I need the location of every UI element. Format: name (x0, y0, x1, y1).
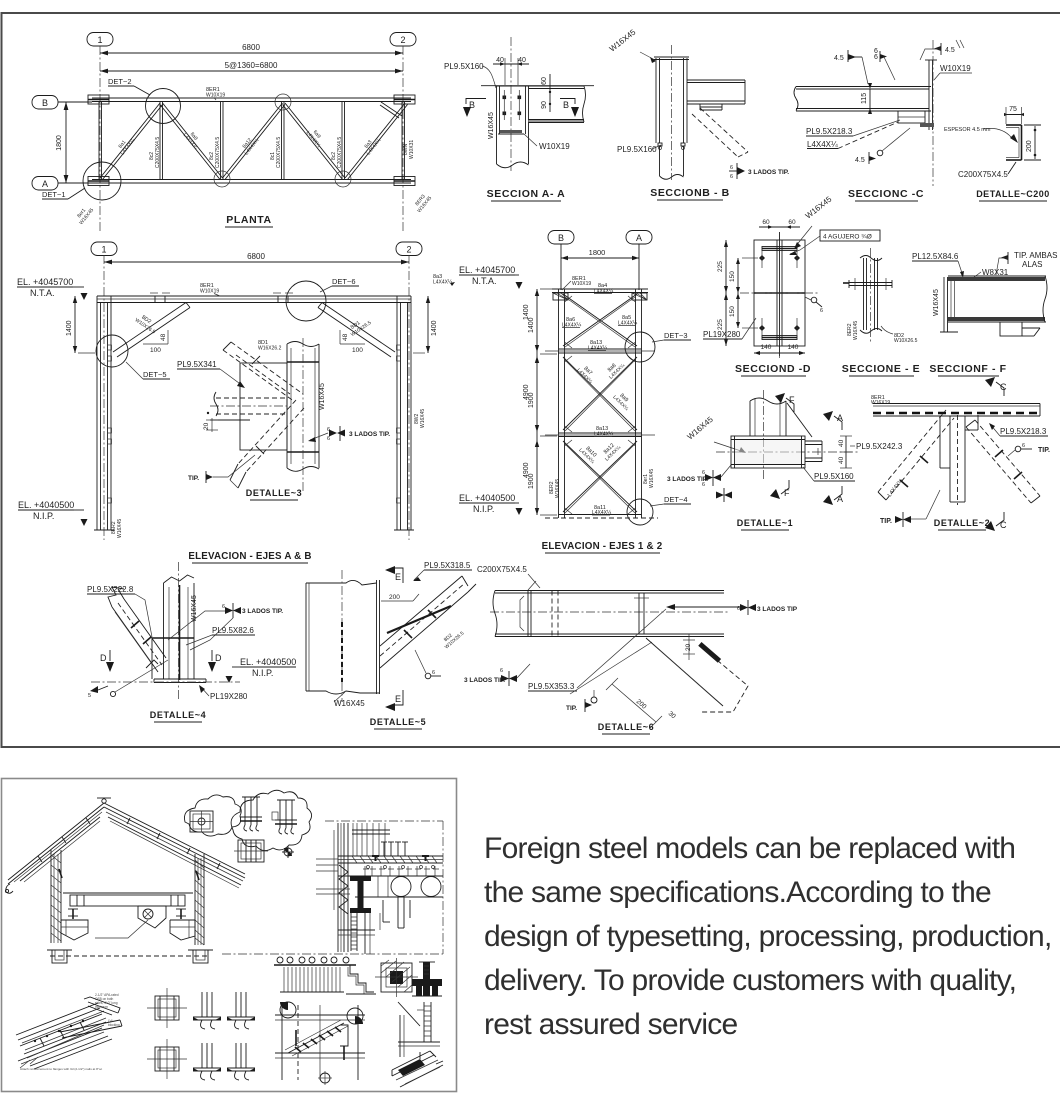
svg-text:N.I.P.: N.I.P. (252, 668, 273, 678)
svg-text:6: 6 (327, 427, 330, 433)
svg-text:DETALLE~2: DETALLE~2 (934, 518, 991, 528)
svg-text:4.5: 4.5 (834, 55, 844, 62)
svg-text:150: 150 (729, 271, 736, 282)
svg-text:PL9.5X341: PL9.5X341 (177, 360, 217, 369)
svg-text:W16X26.2: W16X26.2 (258, 346, 282, 352)
svg-text:48: 48 (160, 333, 167, 341)
svg-text:B: B (558, 233, 564, 243)
svg-text:PL12.5X84.6: PL12.5X84.6 (912, 252, 959, 261)
svg-text:1400: 1400 (66, 320, 73, 336)
svg-text:E: E (395, 694, 401, 704)
svg-text:40: 40 (838, 456, 845, 464)
svg-text:W10X19: W10X19 (940, 64, 971, 73)
svg-text:1800: 1800 (56, 135, 63, 151)
svg-text:W10X19: W10X19 (539, 142, 570, 151)
svg-text:SECCIONC -C: SECCIONC -C (848, 188, 924, 200)
svg-text:SECCIONE - E: SECCIONE - E (842, 363, 920, 375)
svg-text:3 LADOS TIP.: 3 LADOS TIP. (242, 608, 283, 615)
svg-text:20: 20 (203, 422, 210, 430)
svg-text:E: E (395, 572, 401, 582)
svg-text:PL9.5X82.6: PL9.5X82.6 (212, 626, 254, 635)
svg-text:W16X45: W16X45 (420, 409, 426, 428)
svg-text:EL. +4040500: EL. +4040500 (459, 493, 515, 503)
svg-text:L4X4X¼: L4X4X¼ (807, 140, 838, 149)
svg-text:PL9.5X218.3: PL9.5X218.3 (1000, 427, 1047, 436)
svg-text:48: 48 (342, 333, 349, 341)
svg-text:L4X4X¼: L4X4X¼ (433, 280, 453, 286)
svg-text:PL9.5X160: PL9.5X160 (617, 145, 657, 154)
svg-text:6800: 6800 (247, 252, 265, 261)
svg-text:PL9.5X353.3: PL9.5X353.3 (528, 682, 575, 691)
svg-text:ESPESOR 4.5 mm: ESPESOR 4.5 mm (944, 127, 991, 133)
svg-text:40: 40 (838, 439, 845, 447)
svg-text:30: 30 (667, 710, 677, 720)
svg-text:DET~1: DET~1 (42, 190, 66, 199)
svg-text:2: 2 (400, 35, 405, 45)
svg-text:W16X45: W16X45 (488, 112, 495, 139)
svg-text:150: 150 (729, 306, 736, 317)
svg-text:2: 2 (406, 245, 411, 255)
svg-text:6: 6 (874, 54, 878, 61)
svg-text:1: 1 (101, 245, 106, 255)
svg-text:C200X75X4.5: C200X75X4.5 (477, 565, 527, 574)
svg-text:N.T.A.: N.T.A. (30, 288, 55, 298)
svg-text:SECCIOND -D: SECCIOND -D (735, 363, 811, 375)
svg-text:4 AGUJERO ¾Ø: 4 AGUJERO ¾Ø (823, 234, 872, 241)
svg-text:3 LADOS TIP: 3 LADOS TIP (757, 606, 798, 613)
svg-text:D: D (100, 653, 107, 663)
svg-text:C200X75X4.5: C200X75X4.5 (215, 137, 221, 168)
svg-text:225: 225 (717, 261, 724, 272)
svg-text:200: 200 (1026, 140, 1033, 152)
svg-text:4.5: 4.5 (945, 47, 955, 54)
svg-text:DETALLE~1: DETALLE~1 (737, 518, 794, 528)
svg-text:6800: 6800 (242, 43, 260, 52)
svg-text:ELEVACION - EJES A & B: ELEVACION - EJES A & B (188, 551, 311, 562)
svg-text:DETALLE~3: DETALLE~3 (246, 488, 303, 498)
svg-text:PL9.5X318.5: PL9.5X318.5 (424, 561, 471, 570)
svg-text:SECCIONF - F: SECCIONF - F (929, 363, 1006, 375)
svg-text:EL. +4040500: EL. +4040500 (240, 657, 296, 667)
svg-text:6: 6 (820, 308, 823, 314)
svg-text:PL19X280: PL19X280 (703, 330, 741, 339)
svg-text:6: 6 (1022, 443, 1025, 449)
svg-text:5@1360=6800: 5@1360=6800 (225, 61, 278, 70)
svg-text:DETALLE~4: DETALLE~4 (150, 710, 207, 720)
svg-text:90: 90 (541, 101, 548, 109)
svg-text:TIP.: TIP. (566, 705, 577, 712)
svg-text:W16X45: W16X45 (686, 415, 716, 442)
svg-text:PL9.5X160: PL9.5X160 (444, 62, 484, 71)
svg-text:DETALLE~5: DETALLE~5 (370, 717, 427, 727)
svg-text:60: 60 (541, 77, 548, 85)
svg-text:SECCION A- A: SECCION A- A (487, 188, 566, 200)
svg-text:3 LADOS TIP.: 3 LADOS TIP. (464, 677, 505, 684)
svg-text:D: D (215, 653, 222, 663)
svg-text:DET~5: DET~5 (143, 370, 167, 379)
svg-text:PLANTA: PLANTA (226, 214, 271, 226)
svg-text:C: C (1000, 520, 1007, 530)
svg-text:W16X45: W16X45 (649, 469, 655, 488)
svg-text:ALAS: ALAS (1022, 260, 1042, 269)
svg-text:3 LADOS TIP.: 3 LADOS TIP. (349, 431, 390, 438)
svg-text:W16X45: W16X45 (608, 27, 638, 53)
svg-text:W16X45: W16X45 (853, 321, 859, 340)
svg-text:W16X45: W16X45 (334, 699, 365, 708)
svg-text:6: 6 (730, 165, 733, 171)
svg-text:W10X26.5: W10X26.5 (894, 338, 918, 344)
svg-text:200: 200 (635, 698, 648, 711)
svg-text:W10X19: W10X19 (572, 281, 591, 287)
svg-text:6: 6 (500, 668, 503, 674)
svg-text:PL9.5X242.3: PL9.5X242.3 (856, 442, 903, 451)
svg-text:C200X75X4.5: C200X75X4.5 (337, 137, 343, 168)
svg-text:W10X19: W10X19 (200, 289, 219, 295)
svg-text:C200X75X4.5: C200X75X4.5 (155, 137, 161, 168)
svg-text:W10X31: W10X31 (409, 140, 415, 159)
svg-text:6: 6 (874, 48, 878, 55)
svg-text:40: 40 (518, 57, 526, 64)
svg-text:115: 115 (861, 93, 868, 104)
svg-text:L4X4X¼: L4X4X¼ (887, 478, 905, 499)
svg-text:A: A (636, 233, 642, 243)
svg-text:DETALLE~6: DETALLE~6 (598, 722, 655, 732)
svg-text:C200X75X4.5: C200X75X4.5 (276, 137, 282, 168)
svg-text:1800: 1800 (589, 248, 606, 257)
svg-text:DET~6: DET~6 (332, 277, 356, 286)
svg-text:DETALLE~C200: DETALLE~C200 (976, 189, 1050, 199)
svg-text:W16X45: W16X45 (933, 289, 940, 316)
svg-text:W16X19: W16X19 (871, 400, 890, 406)
svg-text:N.I.P.: N.I.P. (33, 511, 54, 521)
svg-text:blocking: blocking (108, 1023, 120, 1027)
svg-text:100: 100 (150, 347, 161, 354)
svg-text:1: 1 (97, 35, 102, 45)
svg-text:TIP.: TIP. (880, 518, 892, 525)
svg-text:minimum: minimum (95, 1005, 108, 1009)
svg-text:140: 140 (788, 344, 799, 351)
svg-text:6: 6 (730, 174, 733, 180)
svg-text:PL9.5X160: PL9.5X160 (814, 472, 854, 481)
svg-text:W16X45: W16X45 (555, 479, 561, 498)
svg-text:PL19X280: PL19X280 (210, 692, 248, 701)
svg-text:3 LADOS TIP.: 3 LADOS TIP. (748, 169, 789, 176)
svg-text:EL. +4045700: EL. +4045700 (459, 265, 515, 275)
svg-text:W16X45: W16X45 (319, 383, 326, 410)
svg-text:W16X45: W16X45 (191, 595, 198, 622)
svg-text:1400: 1400 (528, 317, 535, 333)
svg-text:6: 6 (222, 604, 225, 610)
svg-text:PL9.5X222.8: PL9.5X222.8 (87, 585, 134, 594)
svg-text:W16X45: W16X45 (804, 194, 834, 220)
svg-text:W10X19: W10X19 (206, 93, 225, 99)
svg-text:TIP. AMBAS: TIP. AMBAS (1014, 251, 1057, 260)
svg-text:N.T.A.: N.T.A. (472, 276, 497, 286)
svg-text:1400: 1400 (431, 320, 438, 336)
svg-text:C200X75X4.5: C200X75X4.5 (958, 170, 1008, 179)
svg-text:DET~4: DET~4 (664, 495, 688, 504)
svg-text:1900: 1900 (528, 392, 535, 408)
svg-text:100: 100 (352, 347, 363, 354)
svg-text:C: C (1000, 382, 1007, 392)
svg-text:SECCIONB - B: SECCIONB - B (650, 187, 730, 199)
svg-text:225: 225 (717, 319, 724, 330)
svg-text:A: A (837, 494, 843, 504)
svg-text:B: B (42, 98, 48, 108)
svg-text:EL. +4040500: EL. +4040500 (18, 500, 74, 510)
svg-text:6: 6 (432, 670, 435, 676)
svg-text:6: 6 (327, 436, 330, 442)
svg-text:N.I.P.: N.I.P. (473, 504, 494, 514)
svg-text:EL. +4045700: EL. +4045700 (17, 277, 73, 287)
svg-text:3 LADOS TIP.: 3 LADOS TIP. (667, 476, 708, 483)
svg-text:DET~3: DET~3 (664, 331, 688, 340)
svg-text:F: F (789, 395, 795, 405)
svg-text:W16X45: W16X45 (117, 519, 123, 538)
svg-text:TIP.: TIP. (1038, 447, 1050, 454)
svg-text:5: 5 (88, 693, 91, 699)
svg-text:4.5: 4.5 (855, 157, 865, 164)
svg-text:TIP.: TIP. (188, 475, 199, 482)
svg-text:DET~2: DET~2 (108, 77, 132, 86)
svg-text:140: 140 (761, 344, 772, 351)
svg-text:PL9.5X218.3: PL9.5X218.3 (806, 127, 853, 136)
svg-text:F: F (784, 488, 790, 498)
svg-text:1900: 1900 (528, 473, 535, 489)
svg-text:B: B (563, 100, 569, 110)
svg-text:ELEVACION - EJES 1 & 2: ELEVACION - EJES 1 & 2 (542, 541, 663, 552)
svg-text:75: 75 (1009, 106, 1017, 113)
svg-text:A: A (837, 413, 843, 423)
svg-text:Attach reinforcement to flange: Attach reinforcement to flanges with 3d … (20, 1067, 103, 1071)
svg-text:200: 200 (389, 594, 400, 601)
svg-text:20: 20 (685, 643, 692, 651)
svg-text:60: 60 (788, 219, 796, 226)
svg-text:A: A (42, 179, 48, 189)
svg-text:60: 60 (762, 219, 770, 226)
